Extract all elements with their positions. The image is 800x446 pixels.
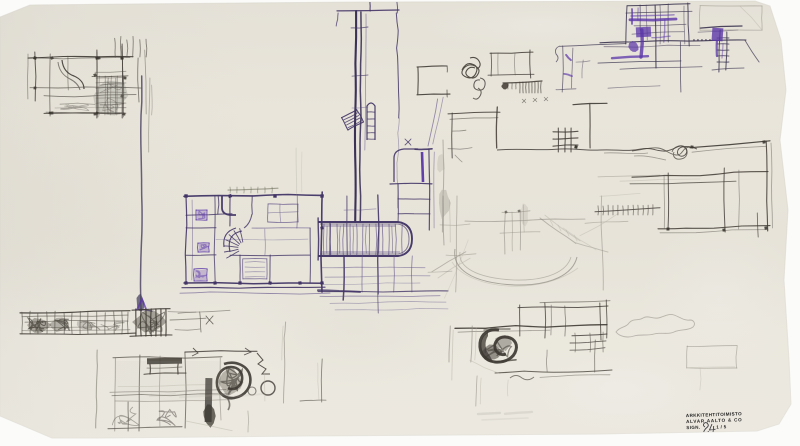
svg-text:SIGN.: SIGN. <box>686 425 700 430</box>
svg-text:1 / 5: 1 / 5 <box>716 424 727 429</box>
